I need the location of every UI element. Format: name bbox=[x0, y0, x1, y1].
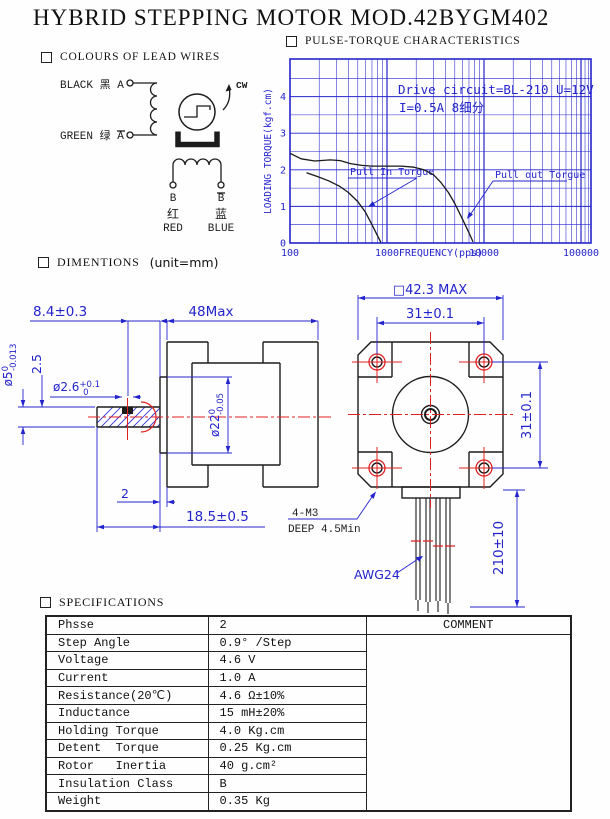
cw-label: CW bbox=[236, 80, 248, 91]
dim-hole-dia: ø2.6+0.10 bbox=[53, 380, 100, 398]
pull-in-leader-line bbox=[369, 178, 417, 206]
dim-8-4: 8.4±0.3 bbox=[33, 304, 87, 320]
dim-hole-pitch-h: 31±0.1 bbox=[406, 307, 454, 322]
dim-flat: 2.5 bbox=[29, 354, 44, 374]
lead-black-label: BLACK 黑 A bbox=[60, 78, 124, 92]
pull-out-leader-line bbox=[468, 181, 493, 218]
datasheet-page: HYBRID STEPPING MOTOR MOD.42BYGM402 COLO… bbox=[0, 0, 610, 819]
specifications-table: Phsse2COMMENTStep Angle0.9° /StepVoltage… bbox=[45, 615, 572, 812]
lead-red-cn-label: 红 bbox=[167, 206, 179, 222]
spec-label: Insulation Class bbox=[46, 775, 208, 793]
chart-annotation-line2: I=0.5A 8细分 bbox=[399, 100, 484, 115]
rotor-symbol-icon bbox=[184, 106, 210, 117]
dim-shaft-dia: ø50-0.013 bbox=[1, 344, 19, 387]
spec-label: Holding Torque bbox=[46, 722, 208, 740]
dim-48max: 48Max bbox=[188, 304, 233, 320]
y-tick-label: 0 bbox=[280, 239, 286, 250]
wire-break-marks bbox=[411, 541, 455, 546]
checkbox-icon bbox=[286, 36, 297, 47]
spec-value: 0.35 Kg bbox=[208, 792, 366, 810]
dim-hole-pitch-v: 31±0.1 bbox=[520, 391, 535, 439]
cw-arrowhead-icon bbox=[226, 84, 232, 92]
lead-red-label: RED bbox=[163, 223, 183, 235]
dim-wire-gauge: AWG24 bbox=[354, 567, 400, 582]
terminal-abar-icon bbox=[127, 132, 133, 138]
pull-in-curve bbox=[307, 173, 381, 243]
spec-value: 4.0 Kg.cm bbox=[208, 722, 366, 740]
lead-blue-cn-label: 蓝 bbox=[215, 207, 227, 222]
spec-value: 15 mH±20% bbox=[208, 704, 366, 722]
coil-b-icon bbox=[173, 159, 221, 165]
pulse-torque-chart: LOADING TORQUE(kgf.cm) FREQUENCY(pps) Dr… bbox=[263, 55, 610, 267]
dim-boss-height: 2 bbox=[121, 486, 129, 501]
lead-wires-diagram: BLACK 黑 A GREEN 绿 A CW B B 红 RED 蓝 BLUE bbox=[40, 48, 265, 244]
spec-comment-cell bbox=[366, 634, 571, 810]
pull-out-leader-arrowhead bbox=[467, 212, 473, 219]
pulse-torque-title: PULSE-TORQUE CHARACTERISTICS bbox=[305, 35, 520, 47]
dim-mount-line1: 4-M3 bbox=[292, 508, 318, 520]
stator-bracket-icon bbox=[178, 132, 217, 145]
terminal-b-label: B bbox=[170, 193, 177, 205]
lead-wires bbox=[416, 498, 450, 603]
dim-shaft-len: 18.5±0.5 bbox=[186, 509, 249, 525]
coil-a-icon bbox=[151, 83, 158, 135]
x-tick-label: 100000 bbox=[563, 248, 599, 259]
spec-value: 4.6 V bbox=[208, 652, 366, 670]
terminal-bbar-label: B bbox=[218, 193, 225, 205]
spec-comment-header: COMMENT bbox=[366, 616, 571, 634]
spec-label: Phsse bbox=[46, 616, 208, 634]
lead-wire-tips bbox=[418, 600, 448, 614]
spec-value: B bbox=[208, 775, 366, 793]
dimensions-unit-note: (unit=mm) bbox=[150, 255, 219, 270]
dim-face-size: □42.3 MAX bbox=[393, 283, 467, 298]
spec-value: 0.9° /Step bbox=[208, 634, 366, 652]
awg-leader-line bbox=[397, 557, 421, 573]
pull-out-curve-label: Pull out Torgue bbox=[495, 170, 585, 181]
pulse-torque-header: PULSE-TORQUE CHARACTERISTICS bbox=[286, 35, 520, 47]
spec-value: 0.25 Kg.cm bbox=[208, 740, 366, 758]
y-tick-label: 2 bbox=[280, 165, 286, 176]
spec-label: Rotor Inertia bbox=[46, 757, 208, 775]
page-title: HYBRID STEPPING MOTOR MOD.42BYGM402 bbox=[33, 5, 549, 31]
dimensions-header: DIMENTIONS (unit=mm) bbox=[38, 255, 218, 270]
spec-label: Weight bbox=[46, 792, 208, 810]
spec-value: 4.6 Ω±10% bbox=[208, 687, 366, 705]
dim-lead-len: 210±10 bbox=[491, 521, 507, 575]
spec-label: Current bbox=[46, 669, 208, 687]
chart-annotation-line1: Drive circuit=BL-210 U=12V bbox=[398, 82, 594, 97]
terminal-bbar-icon bbox=[218, 182, 224, 188]
dimension-drawings: 8.4±0.3 48Max ø50-0.013 2.5 ø2.6+0.10 ø2… bbox=[0, 280, 610, 615]
lead-blue-label: BLUE bbox=[208, 223, 235, 235]
spec-value: 2 bbox=[208, 616, 366, 634]
spec-label: Inductance bbox=[46, 704, 208, 722]
spec-row: Phsse2COMMENT bbox=[46, 616, 571, 634]
spec-value: 1.0 A bbox=[208, 669, 366, 687]
terminal-a-icon bbox=[127, 80, 133, 86]
spec-label: Detent Torque bbox=[46, 740, 208, 758]
chart-y-axis-label: LOADING TORQUE(kgf.cm) bbox=[263, 88, 274, 214]
spec-label: Resistance(20℃) bbox=[46, 687, 208, 705]
spec-label: Step Angle bbox=[46, 634, 208, 652]
y-tick-label: 1 bbox=[280, 202, 286, 213]
checkbox-icon bbox=[38, 257, 49, 268]
x-tick-label: 10000 bbox=[469, 248, 499, 259]
terminal-b-icon bbox=[170, 182, 176, 188]
x-tick-label: 100 bbox=[281, 248, 299, 259]
y-tick-label: 3 bbox=[280, 129, 286, 140]
spec-label: Voltage bbox=[46, 652, 208, 670]
y-tick-label: 4 bbox=[280, 92, 286, 103]
spec-row: Step Angle0.9° /Step bbox=[46, 634, 571, 652]
x-tick-label: 1000 bbox=[375, 248, 399, 259]
dim-boss-dia: ø220-0.05 bbox=[208, 393, 226, 437]
lead-green-label: GREEN 绿 A bbox=[60, 128, 124, 143]
dim-mount-line2: DEEP 4.5Min bbox=[288, 524, 361, 536]
dimensions-title: DIMENTIONS bbox=[57, 255, 140, 270]
spec-value: 40 g.cm² bbox=[208, 757, 366, 775]
